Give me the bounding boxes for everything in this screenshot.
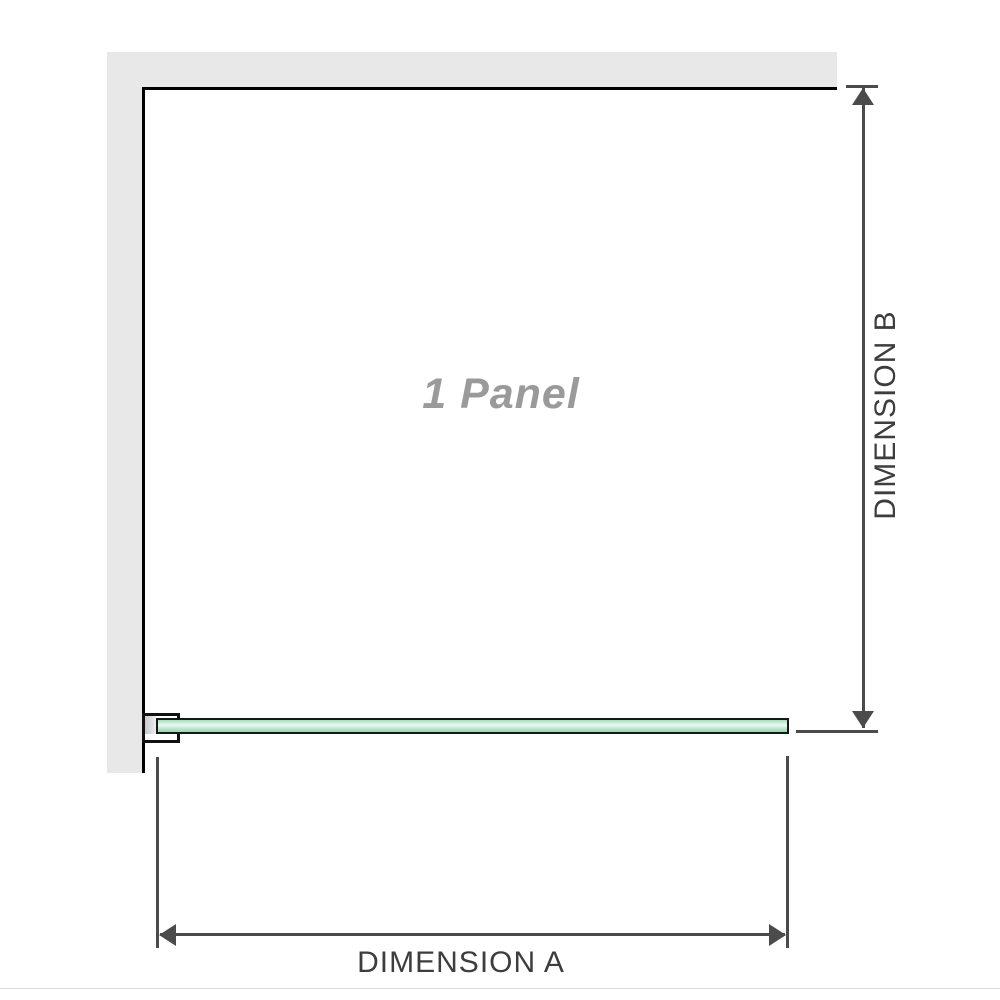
dimension-a-line (160, 933, 785, 936)
panel-count-label: 1 Panel (351, 370, 651, 419)
arrow-right-icon (769, 924, 786, 946)
dimension-a-left-extension (156, 757, 159, 948)
panel-dimension-diagram: 1 Panel DIMENSION B DIMENSION A (0, 0, 1000, 1000)
arrow-up-icon (852, 88, 874, 105)
dimension-b-label: DIMENSION B (869, 305, 903, 525)
dimension-b-line (862, 88, 865, 728)
dimension-b-bottom-tick (796, 730, 878, 733)
wall-top-strip (107, 52, 837, 87)
wall-face-line-left (142, 87, 145, 773)
wall-side-strip (107, 52, 142, 773)
arrow-down-icon (852, 711, 874, 728)
page-divider-line (0, 988, 1000, 990)
dimension-a-label: DIMENSION A (311, 946, 611, 980)
glass-panel (156, 718, 789, 734)
wall-face-line-top (142, 87, 837, 90)
bracket-pad (145, 716, 156, 734)
dimension-a-right-extension (786, 756, 789, 948)
arrow-left-icon (159, 924, 176, 946)
